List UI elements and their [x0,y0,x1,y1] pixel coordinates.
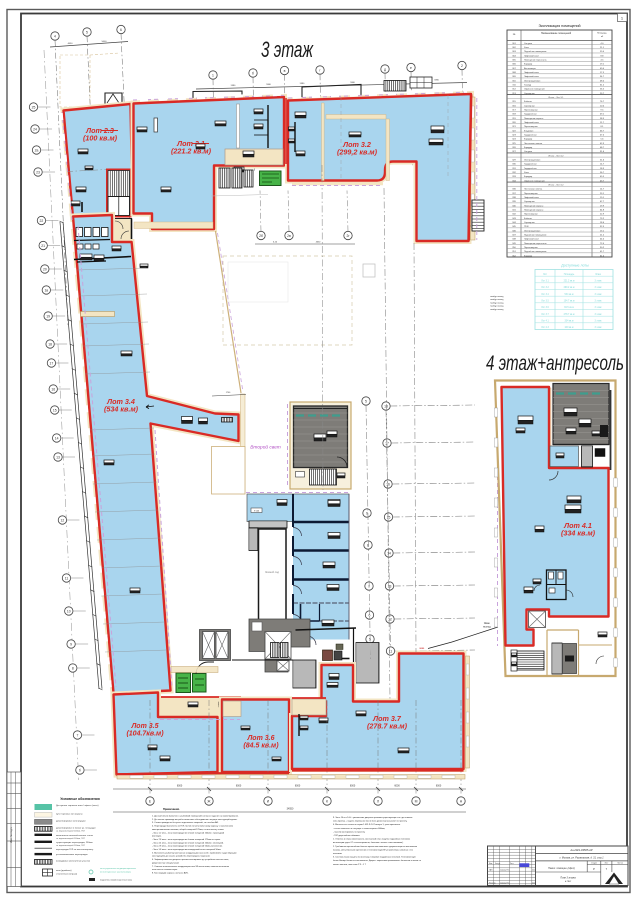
svg-text:Итого - Лот 3.1: Итого - Лот 3.1 [549,97,565,99]
svg-text:Лист: Лист [605,863,609,865]
svg-text:5600: 5600 [102,41,108,43]
svg-text:Л 046: Л 046 [254,511,260,513]
svg-text:6. Зафиксированные дверные про: 6. Зафиксированные дверные проемы монтир… [152,858,229,861]
svg-text:возводимые монолитные участки: возводимые монолитные участки [56,861,91,863]
svg-text:4. Перегородки выполнять из ГК: 4. Перегородки выполнять из ГКЛ листов п… [152,826,234,828]
svg-text:7. Отметки относительных коорд: 7. Отметки относительных координационных… [152,865,229,868]
svg-text:Серверная: Серверная [524,105,535,107]
svg-text:Итого - Лот 3.2: Итого - Лот 3.2 [549,184,565,186]
svg-text:23: 23 [36,170,40,174]
svg-text:конструкциям до начала устройс: конструкциям до начала устройства перего… [152,855,211,858]
svg-text:окна (двойные): окна (двойные) [56,869,72,872]
svg-text:334 кв.м: 334 кв.м [565,321,574,323]
svg-text:Р: Р [593,867,595,871]
svg-text:Лифтовой холл: Лифтовой холл [524,121,540,124]
svg-text:3 этаж: 3 этаж [595,281,602,283]
svg-text:К: К [326,799,328,803]
svg-text:3 этаж: 3 этаж [595,301,602,303]
svg-text:тамбур выход: тамбур выход [490,299,504,301]
svg-text:Лифтовой холл: Лифтовой холл [524,75,540,78]
svg-text:Наименование помещений: Наименование помещений [541,32,572,35]
svg-text:Коридор: Коридор [524,139,533,141]
svg-text:Нежил. помещен. (офис): Нежил. помещен. (офис) [548,867,575,870]
svg-text:(278.7 кв.м): (278.7 кв.м) [367,722,408,731]
svg-text:278.7 кв.м: 278.7 кв.м [564,314,575,316]
svg-text:Лот 3.5: Лот 3.5 [541,301,549,303]
svg-text:тамбур выход: тамбур выход [490,296,504,298]
svg-text:6000: 6000 [295,785,301,788]
svg-text:Венткамера: Венткамера [524,68,536,70]
svg-text:г. Москва, ул. Русаковская, д.: г. Москва, ул. Русаковская, д. 31, стр.1 [559,856,604,859]
svg-text:5: 5 [86,30,88,34]
svg-text:Гардеробная: Гардеробная [524,168,537,170]
svg-text:Лот 3.7: Лот 3.7 [541,314,549,316]
svg-text:Коридор: Коридор [524,255,533,257]
svg-text:монолитные железобетонные стен: монолитные железобетонные стены [56,835,93,837]
svg-text:со звукоизоляцией 100мм, ГКЛ: со звукоизоляцией 100мм, ГКЛ [56,844,85,847]
svg-text:Кабинет: Кабинет [524,101,532,103]
svg-text:демонтируемые и новые уч. площ: демонтируемые и новые уч. площадки [56,828,96,830]
svg-text:- стены навесные не несущие с: - стены навесные не несущие с шагом карк… [333,828,385,830]
svg-text:4 ПБУ: 4 ПБУ [565,880,572,883]
svg-text:- Зона 7.8 кв.м - зона перегор: - Зона 7.8 кв.м - зона перегородки из бл… [152,838,221,841]
svg-text:е: е [410,66,412,70]
svg-text:534 кв.м: 534 кв.м [565,294,574,296]
svg-text:18: 18 [48,342,52,346]
svg-text:3 этаж: 3 этаж [595,287,602,289]
svg-text:6: 6 [120,28,122,32]
svg-text:План 3 этажа: План 3 этажа [560,878,576,880]
svg-text:(100 кв.м): (100 кв.м) [83,134,118,143]
svg-text:4: 4 [54,34,56,38]
svg-text:3 этаж: 3 этаж [595,294,602,296]
svg-text:15: 15 [53,408,57,412]
svg-text:выход: выход [483,626,491,629]
svg-text:Переговорная: Переговорная [524,193,538,195]
svg-text:(334 кв.м): (334 кв.м) [561,529,596,538]
svg-text:Переговорная: Переговорная [524,247,538,249]
svg-text:8: 8 [72,666,74,670]
svg-text:- панели монтировать по проект: - панели монтировать по проекту; [333,831,366,833]
svg-text:б: б [79,768,81,772]
svg-text:3 этаж: 3 этаж [595,307,602,309]
svg-text:Этаж: Этаж [595,273,601,276]
svg-text:изоляции.: изоляции. [152,836,162,838]
svg-text:22: 22 [40,219,44,223]
svg-text:пола чистая соответствует.: пола чистая соответствует. [152,869,178,871]
svg-text:Холл: Холл [524,47,530,49]
svg-text:(299,2 кв.м): (299,2 кв.м) [337,148,378,157]
svg-text:Гардеробная: Гардеробная [524,114,537,116]
svg-text:18: 18 [384,404,388,408]
svg-text:21: 21 [41,244,45,248]
svg-text:13: 13 [56,455,60,459]
svg-text:демонтируемые конструкции: демонтируемые конструкции [56,821,86,823]
svg-text:Инв. № подл.: Инв. № подл. [9,827,13,843]
svg-text:Лот 3.2: Лот 3.2 [541,287,549,289]
svg-text:Лист: Лист [510,863,514,865]
svg-text:Помещение персонала: Помещение персонала [524,243,547,245]
svg-text:ПУИ: ПУИ [524,226,529,228]
svg-text:24: 24 [33,127,37,131]
svg-text:05.21: 05.21 [532,870,536,872]
svg-text:19: 19 [46,314,50,318]
svg-text:221.2 кв.м: 221.2 кв.м [564,281,575,283]
svg-text:9. Зоны 14-а и 14-б - увеличен: 9. Зоны 14-а и 14-б - увеличение дверных… [333,817,412,819]
svg-text:Подсобное помещение: Подсобное помещение [524,51,547,53]
svg-text:Экспликация помещений: Экспликация помещений [538,24,580,28]
svg-text:Переговорная: Переговорная [524,126,538,128]
svg-text:Коридор: Коридор [524,176,533,178]
svg-text:- Зона 1.8 кв.м - зона перегор: - Зона 1.8 кв.м - зона перегородки венти… [152,848,222,851]
svg-text:Доступные лоты: Доступные лоты [561,264,589,268]
svg-text:1. Данный объем выполнен с раз: 1. Данный объем выполнен с разбивкой пом… [152,815,239,818]
svg-text:Помещение охраны: Помещение охраны [524,118,544,120]
svg-text:Примечания.: Примечания. [163,807,180,811]
svg-text:Лот 2.3: Лот 2.3 [541,327,549,329]
svg-text:- Зона 1.2 кв.м - зона перегор: - Зона 1.2 кв.м - зона перегородки из бл… [152,831,224,834]
svg-text:со звукоизоляцией 100мм, ГКЛ: со звукоизоляцией 100мм, ГКЛ [56,837,85,840]
svg-text:3 этаж: 3 этаж [595,314,602,316]
svg-text:84.5 кв.м: 84.5 кв.м [564,307,574,309]
svg-text:9: 9 [70,642,72,646]
svg-text:05.21: 05.21 [532,883,536,885]
svg-text:двери монтаж специальный.: двери монтаж специальный. [152,861,180,864]
svg-text:2б: 2б [259,234,263,238]
svg-text:Помещение охраны: Помещение охраны [524,205,544,207]
svg-text:эвак.: эвак. [419,647,425,650]
svg-text:4650: 4650 [68,43,74,45]
svg-text:2в: 2в [287,234,291,238]
svg-text:белая Квазар балки из стеклопа: белая Квазар балки из стеклопакета. Двер… [333,860,422,862]
svg-text:Холл: Холл [524,172,530,174]
svg-text:м²: м² [601,35,604,38]
svg-text:5: 5 [365,399,367,403]
svg-text:Лестничная клетка: Лестничная клетка [524,189,543,191]
svg-text:Лот 4.1: Лот 4.1 [541,321,549,323]
svg-text:(84.5 кв.м): (84.5 кв.м) [243,742,279,749]
svg-text:тамбур выход: тамбур выход [490,302,504,304]
svg-text:4 этаж+антресоль: 4 этаж+антресоль [486,352,624,375]
svg-text:10: 10 [67,609,71,613]
svg-text:2а: 2а [35,148,39,152]
svg-text:Кладовая: Кладовая [524,130,533,132]
svg-text:тамбур выход: тамбур выход [490,309,504,311]
svg-text:1. Отметка и планы (монтажного: 1. Отметка и планы (монтажного, монтажны… [333,838,411,841]
svg-text:(221.2 кв.м): (221.2 кв.м) [171,147,212,156]
svg-text:Площадь: Площадь [564,273,575,276]
svg-text:Коридор: Коридор [524,147,533,149]
svg-text:д: д [384,67,386,71]
svg-text:104.7 кв.м: 104.7 кв.м [564,301,575,303]
svg-text:- ГКЛ двухслойная обшивка.: - ГКЛ двухслойная обшивка. [333,834,360,837]
svg-text:6000: 6000 [177,785,183,788]
svg-text:Лифтовой холл: Лифтовой холл [524,54,540,57]
svg-text:Лифтовой холл: Лифтовой холл [524,238,540,241]
svg-text:8. Конструкции каркаса согласн: 8. Конструкции каркаса согласно АИ5. [152,871,189,874]
svg-text:3. Схемы приведены без учета о: 3. Схемы приведены без учета отделочных … [152,821,219,824]
svg-text:Кол.уч.: Кол.уч. [495,863,501,865]
svg-text:Помещение персонала: Помещение персонала [524,60,547,62]
svg-text:Лифтовой холл: Лифтовой холл [524,196,540,199]
svg-text:стеклянные витражи: стеклянные витражи [56,874,78,876]
svg-text:Серверная: Серверная [524,222,535,224]
svg-text:Сизова Н.Т.: Сизова Н.Т. [500,883,510,885]
svg-text:устанавливаемые перегородки: устанавливаемые перегородки [56,854,88,856]
svg-text:Подсобное помещение: Подсобное помещение [524,251,547,253]
svg-text:1: 1 [212,73,214,77]
svg-text:Сизова Н.Т.: Сизова Н.Т. [500,870,510,872]
svg-text:2. До начала производства рабо: 2. До начала производства работ выполнит… [152,818,238,821]
svg-text:вентиляционные шахты/камеры: вентиляционные шахты/камеры [100,872,132,874]
svg-text:20: 20 [43,267,47,271]
svg-text:перегородки ГКЛ по металлокарк: перегородки ГКЛ по металлокаркасу [56,849,94,851]
svg-text:6000: 6000 [436,785,442,788]
svg-text:2. Требования кронштейнов бало: 2. Требования кронштейнов балок в проект… [333,845,418,848]
svg-text:25: 25 [32,105,36,109]
svg-text:Л: Л [377,799,379,803]
svg-text:М: М [415,799,418,803]
svg-text:Лестничная клетка: Лестничная клетка [524,143,543,145]
svg-text:2: 2 [461,64,463,68]
svg-text:Переговорная: Переговорная [524,214,538,216]
svg-text:пути торговых зон охраны: пути торговых зон охраны [56,814,83,816]
svg-text:Помещение охраны: Помещение охраны [524,209,544,211]
svg-text:5. Выполнить разметку монтажны: 5. Выполнить разметку монтажных координа… [152,851,237,854]
svg-text:клеить монтаж, пока этаж Р 3..: клеить монтаж, пока этаж Р 3...1 Т [333,864,367,866]
svg-text:(104.7кв.м): (104.7кв.м) [126,730,164,737]
svg-text:Лот 3.6: Лот 3.6 [247,735,275,742]
svg-text:Ан-2021-93565-АР: Ан-2021-93565-АР [569,848,592,852]
svg-text:низа проема + защита перемычек: низа проема + защита перемычек после все… [333,821,408,823]
svg-text:Гардеробная: Гардеробная [524,164,537,166]
svg-text:3 этаж: 3 этаж [595,321,602,323]
svg-text:тамбур выход: тамбур выход [490,306,504,308]
svg-text:- Зона 2.8 кв.м - зона перегор: - Зона 2.8 кв.м - зона перегородки из бл… [152,845,223,848]
svg-text:6000: 6000 [350,785,356,788]
svg-text:Лифтовой холл: Лифтовой холл [524,71,540,74]
svg-text:Второй свет: Второй свет [250,444,281,451]
svg-text:4. Монтаж стен согласно серии: 4. Монтаж стен согласно серии 1.031.9-2.… [333,824,401,826]
svg-text:б: б [252,71,254,75]
svg-text:Коридор: Коридор [524,64,533,66]
svg-text:17: 17 [50,361,54,365]
svg-text:Электрощитовая: Электрощитовая [524,230,540,232]
svg-text:Серверная: Серверная [524,201,535,203]
svg-text:Офисное помещение: Офисное помещение [524,88,546,91]
svg-text:Электрощитовая: Электрощитовая [524,80,540,82]
svg-text:Стадия: Стадия [591,863,597,865]
svg-text:Зимний сад: Зимний сад [265,570,280,574]
svg-text:зоны улучшения кондиционирован: зоны улучшения кондиционирования [100,868,136,870]
svg-text:Лот 3.4: Лот 3.4 [541,294,549,296]
svg-text:Санузел: Санузел [524,43,533,45]
svg-text:Переговорная: Переговорная [524,110,538,112]
svg-text:6000: 6000 [236,785,242,788]
svg-text:Условные обозначения: Условные обозначения [60,797,100,801]
svg-text:7: 7 [77,733,79,737]
svg-text:3 этаж: 3 этаж [261,37,314,62]
svg-text:Изм.: Изм. [489,863,493,865]
svg-text:100 кв.м: 100 кв.м [565,327,574,329]
svg-text:14: 14 [387,551,391,555]
svg-text:3. Система банок защиты по мон: 3. Система банок защиты по монтажу и обш… [333,857,416,859]
svg-text:Доступные торговые зоны / офис: Доступные торговые зоны / офисы (лоты) [56,804,99,807]
svg-text:Н.контр.: Н.контр. [489,883,496,885]
svg-text:Лот 3.5: Лот 3.5 [131,723,159,730]
svg-text:минераловатными плитами, общей: минераловатными плитами, общей толщиной … [152,828,224,831]
svg-text:(534 кв.м): (534 кв.м) [104,405,139,414]
svg-text:3 этаж: 3 этаж [595,327,602,329]
svg-text:подсветка люминесцентная зоны: подсветка люминесцентная зоны [100,880,133,882]
svg-text:Подсобное помещение: Подсобное помещение [524,234,547,236]
svg-text:11: 11 [65,576,69,580]
svg-text:Эвак.: Эвак. [484,621,491,625]
svg-text:6000: 6000 [394,785,400,788]
svg-text:Электрощитовая: Электрощитовая [524,159,540,161]
svg-text:Тамбур: Тамбур [524,85,532,87]
svg-text:балкам, металлические креплени: балкам, металлические крепления и теплои… [333,848,413,851]
svg-text:- Зона 4.4 кв.м - зона перегор: - Зона 4.4 кв.м - зона перегородки из бл… [152,841,224,844]
svg-text:16: 16 [51,387,55,391]
svg-text:Лот 3.1: Лот 3.1 [541,281,549,283]
svg-text:Лот 3.6: Лот 3.6 [541,307,549,309]
svg-text:Кабинет: Кабинет [524,218,532,220]
svg-text:15: 15 [387,515,391,519]
svg-text:12: 12 [61,518,65,522]
svg-text:со звукоизоляцией 100мм, ГКЛ: со звукоизоляцией 100мм, ГКЛ [56,830,85,833]
svg-text:потолков.: потолков. [333,853,343,855]
svg-text:вентиляции групп ОГ остаток вр: вентиляции групп ОГ остаток времени, бол… [333,842,404,844]
svg-text:34550: 34550 [287,808,294,811]
svg-text:299.2 кв.м: 299.2 кв.м [564,287,575,289]
svg-text:Площадь,: Площадь, [597,33,608,35]
svg-text:Листов: Листов [617,863,623,865]
svg-text:в: в [284,69,286,73]
svg-text:существующие перегородки, 250м: существующие перегородки, 250мм [56,842,93,844]
svg-text:Итого - Лот 3.2: Итого - Лот 3.2 [549,155,565,157]
svg-text:14: 14 [55,436,59,440]
svg-text:16: 16 [386,482,390,486]
svg-text:Гардеробная: Гардеробная [524,135,537,137]
svg-text:№: № [513,33,516,36]
svg-text:1в: 1в [44,288,48,292]
